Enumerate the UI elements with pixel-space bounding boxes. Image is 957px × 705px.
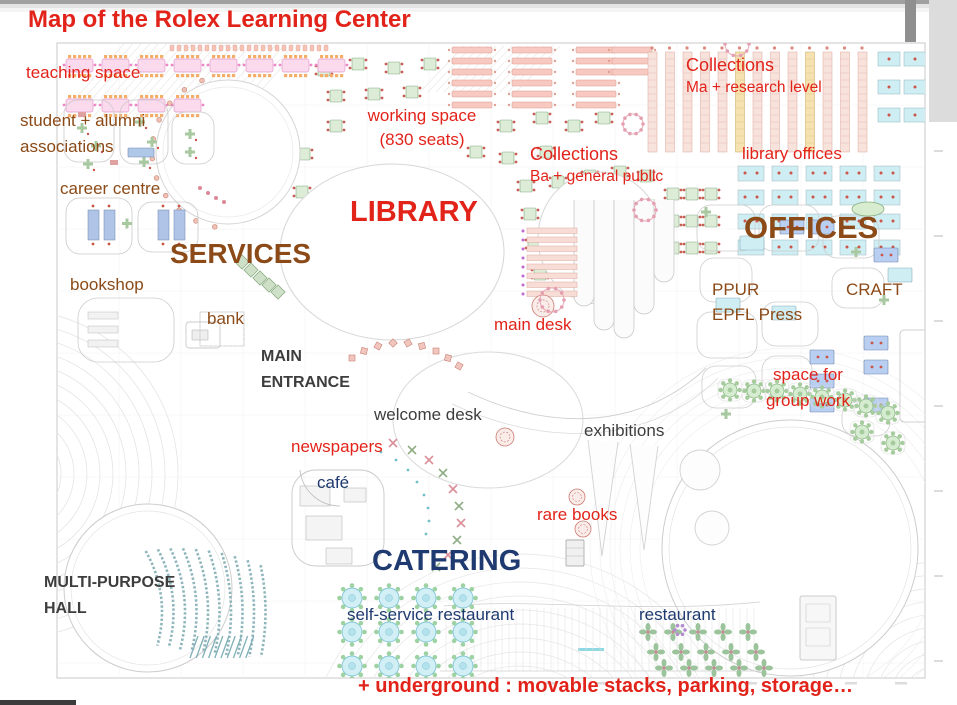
label-self-service-restaurant: self-service restaurant bbox=[347, 604, 514, 626]
label-space-for-group-work: space for group work bbox=[752, 362, 864, 414]
label-collections-ma: Collections Ma + research level bbox=[686, 54, 822, 98]
label-services: SERVICES bbox=[170, 236, 311, 273]
label-cafe: café bbox=[317, 472, 349, 494]
label-bank: bank bbox=[207, 308, 244, 330]
label-multi-purpose-hall: MULTI-PURPOSE HALL bbox=[44, 570, 175, 622]
label-welcome-desk: welcome desk bbox=[374, 404, 482, 426]
slide-map-rolex-learning-center: Map of the Rolex Learning Center teachin… bbox=[0, 0, 957, 705]
label-main-entrance: MAIN ENTRANCE bbox=[261, 344, 350, 396]
label-epfl-press: EPFL Press bbox=[712, 304, 802, 326]
label-ppur: PPUR bbox=[712, 279, 759, 301]
label-rare-books: rare books bbox=[537, 504, 617, 526]
label-library: LIBRARY bbox=[350, 193, 478, 231]
label-student-alumni: student + alumni associations bbox=[20, 108, 145, 160]
label-offices: OFFICES bbox=[744, 208, 878, 249]
label-restaurant: restaurant bbox=[639, 604, 716, 626]
label-main-desk: main desk bbox=[494, 314, 571, 336]
label-career-centre: career centre bbox=[60, 178, 160, 200]
label-library-offices: library offices bbox=[742, 143, 842, 165]
label-bookshop: bookshop bbox=[70, 274, 144, 296]
label-exhibitions: exhibitions bbox=[584, 420, 664, 442]
label-catering: CATERING bbox=[372, 542, 521, 580]
label-underground-note: + underground : movable stacks, parking,… bbox=[358, 673, 853, 699]
label-craft: CRAFT bbox=[846, 279, 903, 301]
label-collections-ba: Collections Ba + general public bbox=[530, 143, 663, 187]
label-working-space: working space (830 seats) bbox=[348, 104, 496, 152]
label-teaching-space: teaching space bbox=[26, 62, 140, 84]
page-title: Map of the Rolex Learning Center bbox=[28, 4, 411, 36]
label-newspapers: newspapers bbox=[291, 436, 383, 458]
